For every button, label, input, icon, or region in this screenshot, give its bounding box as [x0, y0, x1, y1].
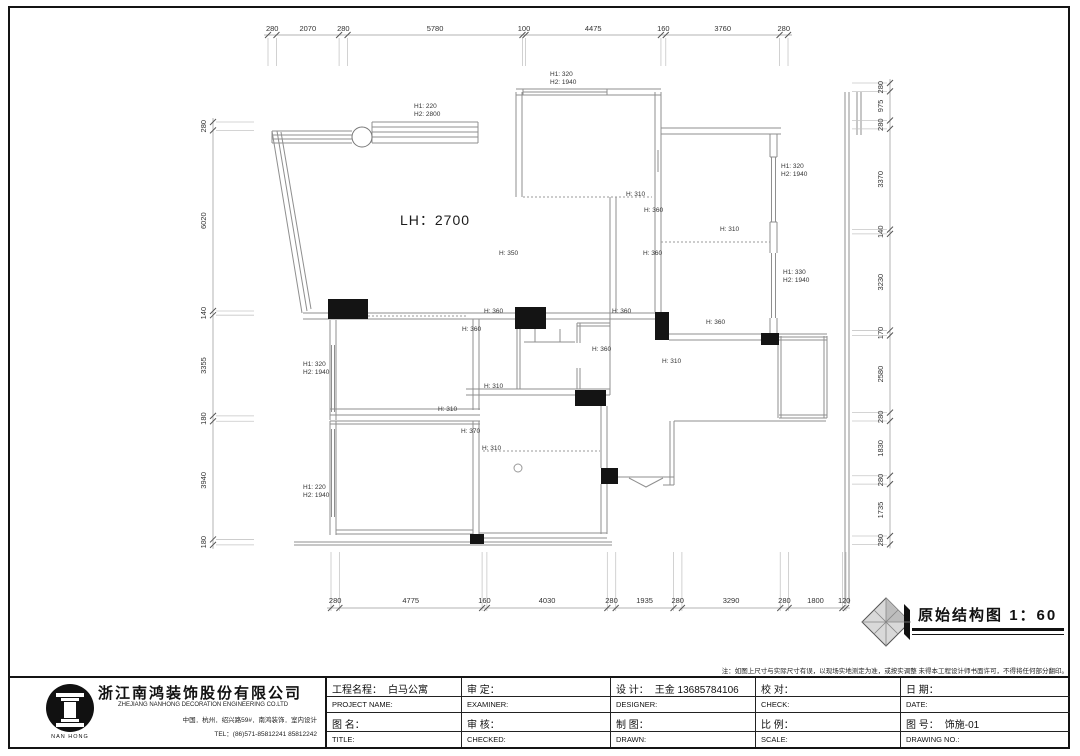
title-block-row: 图 名：审 核：制 图：比 例：图 号：饰施-01 — [327, 713, 1070, 732]
door-swing — [629, 478, 663, 487]
height-label: H1: 320H2: 1940 — [303, 361, 329, 376]
dim-value: 975 — [876, 100, 885, 113]
dim-value: 280 — [337, 24, 350, 33]
height-label: H: 370 — [461, 428, 480, 436]
stamp-logo-icon — [860, 596, 912, 648]
dim-value: 4475 — [585, 24, 602, 33]
dim-value: 280 — [778, 596, 791, 605]
dim-value: 100 — [518, 24, 531, 33]
title-block-cell: DRAWN: — [611, 732, 756, 747]
height-label-line: H: 360 — [462, 326, 481, 334]
field-label: EXAMINER: — [467, 700, 508, 709]
field-label: 日 期： — [906, 685, 939, 696]
height-label-line: H: 310 — [626, 191, 645, 199]
dim-value: 1735 — [876, 502, 885, 519]
title-block-cell: TITLE: — [327, 732, 462, 747]
field-label: CHECK: — [761, 700, 789, 709]
height-label: H: 360 — [706, 319, 725, 327]
drawing-scale: 1：60 — [1009, 607, 1057, 624]
title-block-cell: SCALE: — [756, 732, 901, 747]
dim-value: 3355 — [199, 357, 208, 374]
title-block-fields: 工程名程：白马公寓审 定：设 计：王金 13685784106校 对：日 期：P… — [327, 678, 1070, 747]
dim-value: 3370 — [876, 171, 885, 188]
height-label-line: H: 310 — [662, 358, 681, 366]
dim-value: 280 — [199, 120, 208, 133]
field-label: PROJECT NAME: — [332, 700, 393, 709]
title-block-cell: 图 号：饰施-01 — [901, 713, 1070, 731]
dim-value: 180 — [199, 412, 208, 425]
title-block-cell: 设 计：王金 13685784106 — [611, 678, 756, 696]
dim-value: 280 — [876, 81, 885, 94]
title-block-row: TITLE:CHECKED:DRAWN:SCALE:DRAWING NO.: — [327, 732, 1070, 747]
dim-value: 1800 — [807, 596, 824, 605]
height-label: H: 360 — [644, 207, 663, 215]
floor-drain — [514, 464, 522, 472]
title-block-cell: 审 核： — [462, 713, 611, 731]
title-block-cell: 比 例： — [756, 713, 901, 731]
stamp-underline-thin — [912, 634, 1064, 635]
height-label-line: H2: 1940 — [781, 171, 807, 179]
dim-value: 5780 — [427, 24, 444, 33]
dim-value: 160 — [478, 596, 491, 605]
title-block-cell: DESIGNER: — [611, 697, 756, 712]
title-block-cell: DATE: — [901, 697, 1070, 712]
dim-value: 280 — [876, 534, 885, 547]
height-label-line: H: 360 — [644, 207, 663, 215]
field-label: 设 计： — [616, 685, 649, 696]
title-block: NAN HONG 浙江南鸿装饰股份有限公司 ZHEJIANG NANHONG D… — [10, 676, 1068, 747]
dim-value: 280 — [329, 596, 342, 605]
height-label: H: 360 — [484, 308, 503, 316]
company-telephone: TEL：(86)571-85812241 85812242 — [214, 728, 317, 738]
dim-value: 1830 — [876, 440, 885, 457]
dim-value: 140 — [876, 225, 885, 238]
height-label-line: H1: 330 — [783, 269, 809, 277]
height-label: H: 360 — [592, 346, 611, 354]
height-label-line: H: 360 — [592, 346, 611, 354]
height-label: H1: 320H2: 1940 — [781, 163, 807, 178]
company-name: 浙江南鸿装饰股份有限公司 — [98, 682, 302, 703]
height-label-line: H: 360 — [706, 319, 725, 327]
height-label: H1: 320H2: 1940 — [550, 71, 576, 86]
title-block-cell: CHECKED: — [462, 732, 611, 747]
dim-value: 280 — [605, 596, 618, 605]
dim-value: 280 — [876, 118, 885, 131]
field-label: SCALE: — [761, 735, 788, 744]
company-panel: NAN HONG 浙江南鸿装饰股份有限公司 ZHEJIANG NANHONG D… — [10, 678, 327, 747]
height-label-line: H: 360 — [643, 250, 662, 258]
dim-value: 140 — [199, 307, 208, 320]
field-label: DRAWN: — [616, 735, 646, 744]
height-label-line: H: 360 — [484, 308, 503, 316]
title-block-row: 工程名程：白马公寓审 定：设 计：王金 13685784106校 对：日 期： — [327, 678, 1070, 697]
height-label-line: H: 350 — [499, 250, 518, 258]
company-logo-icon — [44, 682, 96, 738]
dim-value: 2070 — [299, 24, 316, 33]
field-label: DESIGNER: — [616, 700, 657, 709]
drawing-title: 原始结构图 1：60 — [918, 604, 1057, 625]
dim-value: 4030 — [539, 596, 556, 605]
height-label: H: 310 — [662, 358, 681, 366]
field-label: DATE: — [906, 700, 928, 709]
company-logo-text: NAN HONG — [44, 734, 96, 740]
height-label-line: H1: 320 — [781, 163, 807, 171]
drawing-title-stamp: 原始结构图 1：60 — [860, 596, 1068, 648]
title-block-cell: CHECK: — [756, 697, 901, 712]
dim-value: 280 — [876, 474, 885, 487]
field-label: 校 对： — [761, 685, 794, 696]
height-label-line: H1: 220 — [414, 103, 440, 111]
dim-value: 280 — [876, 411, 885, 424]
height-label: H1: 330H2: 1940 — [783, 269, 809, 284]
height-label-line: H1: 220 — [303, 484, 329, 492]
height-label-line: H2: 1940 — [303, 369, 329, 377]
title-block-cell: 日 期： — [901, 678, 1070, 696]
dim-value: 1935 — [636, 596, 653, 605]
height-label-line: H1: 320 — [303, 361, 329, 369]
dim-value: 280 — [266, 24, 279, 33]
field-label: 比 例： — [761, 720, 794, 731]
height-label: H: 310 — [438, 406, 457, 414]
height-label-line: H2: 2800 — [414, 111, 440, 119]
title-block-cell: 图 名： — [327, 713, 462, 731]
height-label-line: H: 310 — [484, 383, 503, 391]
ceiling-height-label: LH：2700 — [400, 210, 470, 230]
height-label-line: H: 360 — [612, 308, 631, 316]
field-label: TITLE: — [332, 735, 355, 744]
title-block-row: PROJECT NAME:EXAMINER:DESIGNER:CHECK:DAT… — [327, 697, 1070, 713]
title-block-cell: PROJECT NAME: — [327, 697, 462, 712]
height-label-line: H: 310 — [720, 226, 739, 234]
walls — [272, 89, 861, 604]
title-block-cell: 校 对： — [756, 678, 901, 696]
title-block-cell: 审 定： — [462, 678, 611, 696]
dim-value: 4775 — [402, 596, 419, 605]
field-value: 饰施-01 — [945, 720, 979, 731]
title-block-cell: DRAWING NO.: — [901, 732, 1070, 747]
height-label-line: H: 310 — [438, 406, 457, 414]
disclaimer-note: 注：如图上尺寸与实际尺寸有误，以现场实地测定为准，或按实调整 未得本工程设计师书… — [620, 665, 1068, 675]
field-value: 王金 13685784106 — [655, 685, 739, 696]
title-block-cell: 制 图： — [611, 713, 756, 731]
company-name-en: ZHEJIANG NANHONG DECORATION ENGINEERING … — [118, 702, 288, 708]
dim-value: 3760 — [714, 24, 731, 33]
height-label: H1: 220H2: 1940 — [303, 484, 329, 499]
title-block-cell: EXAMINER: — [462, 697, 611, 712]
height-label-line: H2: 1940 — [783, 277, 809, 285]
company-address: 中国．杭州．绍兴路59#．南鸿装饰．室内设计 — [183, 714, 317, 724]
field-label: 审 核： — [467, 720, 500, 731]
field-label: 工程名程： — [332, 685, 382, 696]
dim-value: 6020 — [199, 212, 208, 229]
height-label: H: 350 — [499, 250, 518, 258]
dim-value: 170 — [876, 327, 885, 340]
height-label: H: 310 — [482, 445, 501, 453]
height-label: H: 360 — [462, 326, 481, 334]
dim-value: 280 — [671, 596, 684, 605]
field-label: 审 定： — [467, 685, 500, 696]
dim-value: 180 — [199, 536, 208, 549]
height-label-line: H: 310 — [482, 445, 501, 453]
dim-value: 2580 — [876, 366, 885, 383]
height-label: H1: 220H2: 2800 — [414, 103, 440, 118]
height-label-line: H2: 1940 — [550, 79, 576, 87]
dim-value: 120 — [838, 596, 851, 605]
field-label: 图 号： — [906, 720, 939, 731]
height-label-line: H1: 320 — [550, 71, 576, 79]
height-label-line: H: 370 — [461, 428, 480, 436]
height-label: H: 310 — [720, 226, 739, 234]
height-label: H: 310 — [626, 191, 645, 199]
dim-value: 3940 — [199, 472, 208, 489]
round-column — [352, 127, 372, 147]
dim-value: 3290 — [723, 596, 740, 605]
field-label: 图 名： — [332, 720, 365, 731]
stamp-underline — [912, 628, 1064, 631]
height-label: H: 310 — [484, 383, 503, 391]
height-label: H: 360 — [643, 250, 662, 258]
field-value: 白马公寓 — [388, 685, 428, 696]
height-label-line: H2: 1940 — [303, 492, 329, 500]
height-label: H: 360 — [612, 308, 631, 316]
dim-value: 280 — [778, 24, 791, 33]
drawing-title-text: 原始结构图 — [918, 607, 1003, 624]
title-block-cell: 工程名程：白马公寓 — [327, 678, 462, 696]
field-label: 制 图： — [616, 720, 649, 731]
drawing-sheet: 2802070280578010044751603760280280477516… — [0, 0, 1080, 756]
dim-value: 160 — [657, 24, 670, 33]
dim-value: 3230 — [876, 274, 885, 291]
field-label: CHECKED: — [467, 735, 506, 744]
field-label: DRAWING NO.: — [906, 735, 959, 744]
